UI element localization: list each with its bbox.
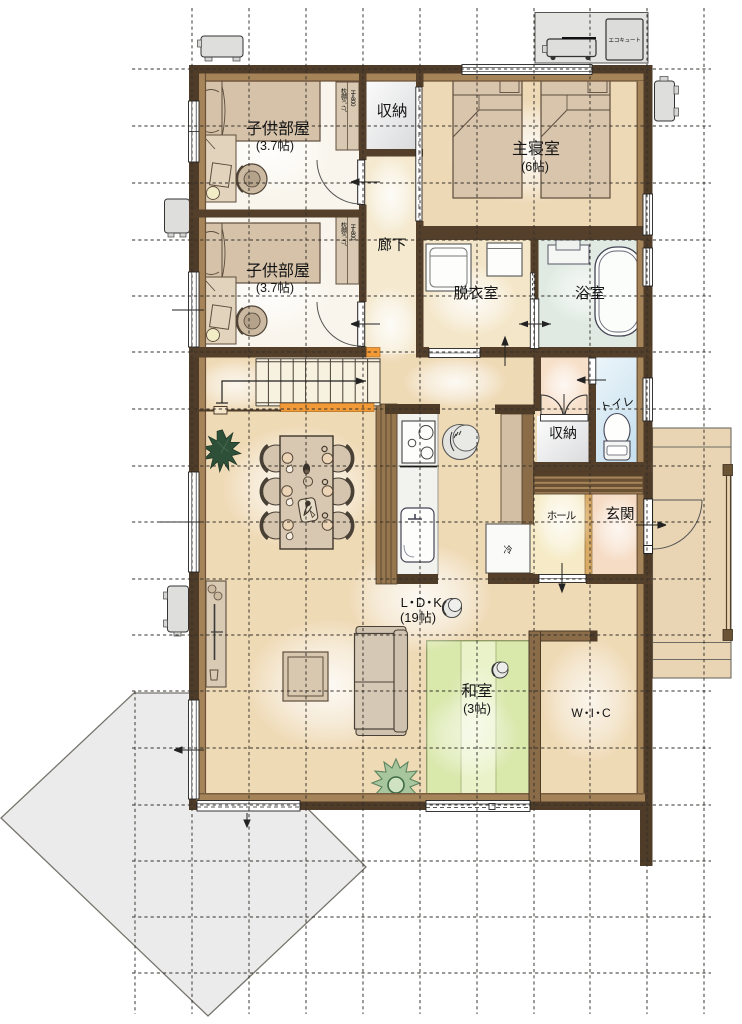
svg-text:子供部屋: 子供部屋 [246,262,310,280]
svg-text:浴室: 浴室 [575,285,605,302]
svg-text:脱衣室: 脱衣室 [453,285,498,302]
svg-text:廊下: 廊下 [378,237,407,254]
svg-text:収納: 収納 [549,425,577,441]
svg-text:子供部屋: 子供部屋 [246,120,310,138]
svg-text:ホール: ホール [547,510,576,522]
svg-text:H=800: H=800 [349,224,356,241]
svg-text:H=800: H=800 [349,90,356,107]
svg-text:収納: 収納 [376,102,407,120]
svg-text:冷: 冷 [503,544,512,555]
svg-text:玄関: 玄関 [606,506,635,523]
svg-text:(6帖): (6帖) [521,159,549,174]
svg-text:(19帖): (19帖) [400,610,436,625]
svg-text:(3.7帖): (3.7帖) [256,280,294,295]
svg-text:枕棚ﾊﾟｲﾌﾟ: 枕棚ﾊﾟｲﾌﾟ [340,221,347,247]
svg-text:和室: 和室 [461,682,492,700]
svg-text:枕棚ﾊﾟｲﾌﾟ: 枕棚ﾊﾟｲﾌﾟ [340,87,347,113]
svg-text:(3.7帖): (3.7帖) [256,138,294,153]
svg-text:L・D・K: L・D・K [401,595,443,610]
svg-text:(3帖): (3帖) [463,701,491,716]
svg-text:W・I・C: W・I・C [571,706,611,720]
svg-text:エコキュート: エコキュート [608,37,640,44]
svg-text:主寝室: 主寝室 [512,139,560,158]
